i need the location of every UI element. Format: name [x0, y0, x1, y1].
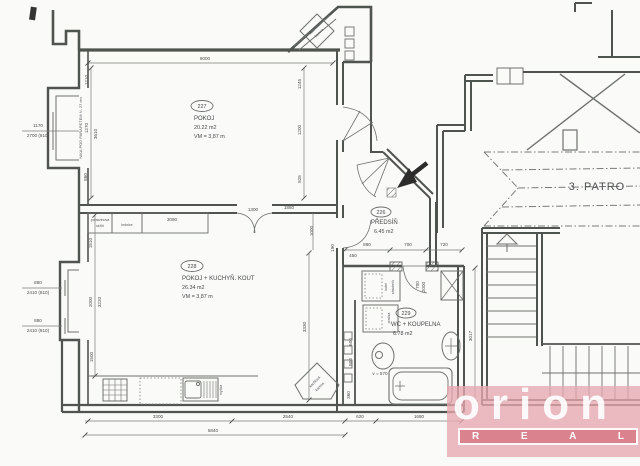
stove-icon: [103, 379, 127, 401]
stairwell-walls: [437, 3, 640, 233]
corridor: 3. PATRO: [484, 152, 640, 226]
room-area: 6.45 m2: [374, 229, 393, 235]
nika-annotation: NIKA POD PARAPETEM N. 27 cm: [78, 97, 83, 159]
room-number: 226: [377, 210, 386, 216]
real-letter: E: [521, 431, 528, 442]
room-height: VM = 3,87 m: [182, 294, 213, 300]
room-name: PŘEDSÍŇ: [371, 218, 398, 226]
bathtub-icon: [389, 368, 452, 404]
boiler-label: kotel: [384, 283, 388, 291]
dimension-label: 6000: [200, 56, 211, 61]
room-name: POKOJ: [194, 116, 214, 122]
dimension-label: 880: [34, 318, 42, 323]
toilet-icon: [372, 343, 394, 369]
dimension-label: 2540: [283, 414, 294, 419]
dimension-label: 1500: [89, 351, 94, 362]
dimension-label: 5840: [208, 428, 219, 433]
boiler-unit: kotel zásobník: [362, 271, 400, 301]
room-area: 20.22 m2: [194, 125, 216, 131]
dimension-label: 3330: [302, 321, 307, 332]
dimension-label: 3220: [97, 296, 102, 307]
dimension-label: 700: [415, 281, 420, 289]
room-number: 229: [402, 311, 411, 317]
dimension-label: 700: [404, 242, 412, 247]
dimension-label: 3300: [153, 414, 164, 419]
dimension-label: 1880: [284, 205, 295, 210]
room-label-228: 228 POKOJ + KUCHYŇ. KOUT 26.34 m2 VM = 3…: [181, 261, 255, 301]
dimension-label: 190: [330, 244, 335, 252]
room-height: VM = 3,87 m: [194, 134, 225, 140]
real-letter: A: [569, 431, 576, 442]
room-number: 228: [188, 264, 197, 270]
dimension-label: 1200: [297, 124, 302, 135]
pantry-band: potravinová skříň lednice: [88, 213, 208, 233]
dimension-label: 620: [356, 414, 364, 419]
interior-walls: [79, 27, 464, 412]
dimension-label: 2410 (810): [27, 290, 50, 295]
orion-real-watermark: orion R E A L: [447, 386, 640, 457]
real-letter: L: [618, 431, 624, 442]
real-letter: R: [472, 431, 479, 442]
dimension-label: 3090: [167, 217, 178, 222]
room-label-227: 227 POKOJ 20.22 m2 VM = 3,87 m: [191, 101, 225, 141]
dimension-label: 3017: [468, 330, 473, 341]
tub-height-label: v = 570: [372, 371, 388, 376]
floor-label: 3. PATRO: [569, 181, 626, 193]
dimension-label: 2700 (810): [27, 133, 50, 138]
vent-shaft: [441, 271, 463, 300]
dimension-label: 1210: [84, 74, 89, 85]
dimension-label: 720: [440, 242, 448, 247]
dishwasher-label: myčka: [219, 385, 223, 395]
room-number: 227: [198, 104, 207, 110]
dishwasher-outline: [140, 378, 181, 404]
room-area: 26.34 m2: [182, 285, 204, 291]
staircase: [482, 228, 640, 405]
dimension-label: 1270: [84, 122, 89, 133]
dimension-label: 3610: [93, 128, 98, 139]
tank-label: zásobník: [391, 280, 395, 295]
dimension-label: 2000: [421, 281, 426, 292]
dimension-label: 880: [34, 280, 42, 285]
sink-icon: [183, 378, 218, 401]
room-area: 6.78 m2: [393, 331, 412, 337]
fridge-label: lednice: [121, 223, 132, 227]
scan-artifact: [29, 7, 37, 21]
dimension-label: 800: [348, 358, 353, 366]
dimension-label: 600: [348, 338, 353, 346]
dimension-label: 880: [363, 242, 371, 247]
dimension-label: 825: [297, 175, 302, 183]
dimension-label: 860: [83, 173, 88, 181]
dimension-label: 1680: [414, 414, 425, 419]
room-name: POKOJ + KUCHYŇ. KOUT: [182, 275, 255, 282]
dimension-label: 1170: [33, 123, 43, 128]
dimension-label: 2000: [88, 296, 93, 307]
kitchen-counter: myčka: [88, 376, 258, 404]
orion-logo-text: orion: [453, 382, 640, 428]
tiled-stove-228: kachlová kamna: [295, 363, 339, 399]
room-name: WC + KOUPELNA: [391, 322, 441, 328]
room-label-226: 226 PŘEDSÍŇ 6.45 m2: [371, 207, 398, 235]
dimension-label: 1300: [248, 207, 259, 212]
dimension-label: 1000: [309, 225, 314, 236]
orion-real-box: R E A L: [458, 428, 638, 445]
dimension-label: 2410 (810): [27, 328, 50, 333]
svg-text:skříň: skříň: [96, 224, 104, 228]
tiled-stove-227: kachlová kamna: [294, 14, 336, 50]
pantry-label: potravinová: [91, 218, 110, 222]
floorplan-page: kachlová kamna kachlová kamna potravinov…: [0, 0, 640, 466]
dimension-label: 1510: [88, 237, 93, 248]
dimension-label: 450: [349, 253, 357, 258]
dimension-label: 1245: [297, 78, 302, 89]
dimension-label: 360: [346, 391, 351, 399]
